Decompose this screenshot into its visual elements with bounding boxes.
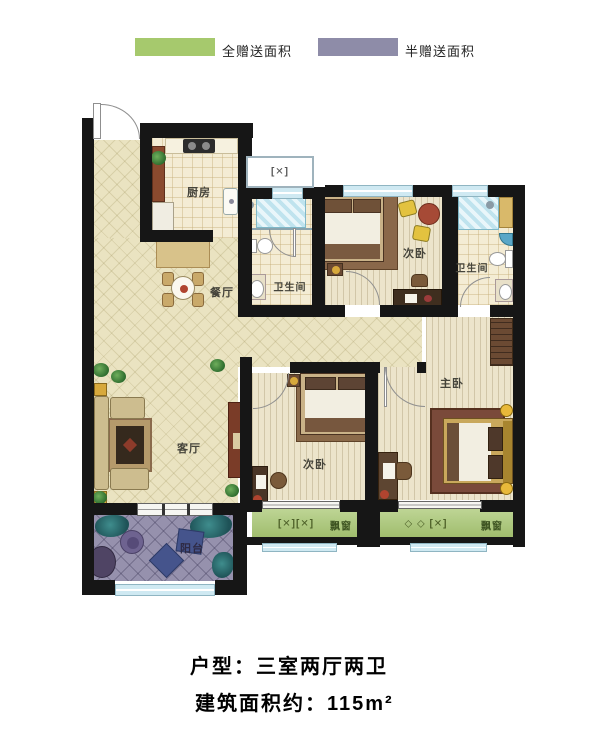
- bay-window-symbol: [✕][✕]: [278, 519, 314, 530]
- bathroom-sink-icon: [495, 279, 513, 302]
- nightstand-icon: [327, 263, 343, 276]
- master-bed-icon: [443, 418, 513, 484]
- nightstand-icon: [287, 374, 300, 387]
- balcony-table-icon: [120, 530, 144, 554]
- room-label-living: 客厅: [177, 440, 201, 456]
- wall-segment: [442, 185, 458, 317]
- legend-full-gift-swatch: [135, 38, 215, 56]
- shower-head-icon: [486, 201, 494, 209]
- window-bathroom2: [452, 185, 488, 197]
- window-balcony: [115, 584, 215, 596]
- bed-icon: [300, 373, 372, 435]
- wall-segment: [82, 118, 94, 595]
- dining-table-icon: [171, 276, 195, 300]
- bay-window-left-label: 飘窗: [330, 518, 352, 533]
- dining-rug: [156, 238, 210, 268]
- sofa-icon: [94, 396, 109, 490]
- wardrobe-icon: [490, 318, 513, 366]
- bay-window-left-glass: [262, 543, 337, 552]
- hallway-floor: [238, 317, 422, 367]
- desk-chair-icon: [411, 274, 428, 287]
- wall-segment: [378, 500, 398, 512]
- wall-segment: [147, 230, 213, 242]
- room-label-bathroom1: 卫生间: [274, 279, 307, 294]
- window-bathroom1: [272, 187, 303, 199]
- room-label-dining: 餐厅: [210, 284, 234, 300]
- legend-half-gift-label: 半赠送面积: [405, 41, 475, 60]
- desk-chair-icon: [396, 462, 412, 480]
- wall-segment: [140, 123, 253, 138]
- kitchen-sink-icon: [223, 188, 238, 215]
- dining-chair: [192, 293, 204, 307]
- plant-icon: [151, 151, 166, 165]
- plant-icon: [210, 359, 225, 372]
- bay-window-right-label: 飘窗: [481, 518, 503, 533]
- legend-full-gift-label: 全赠送面积: [222, 41, 292, 60]
- wall-segment: [290, 362, 380, 373]
- wall-segment: [240, 362, 252, 510]
- desk-chair-icon: [270, 472, 287, 489]
- toilet-icon: [505, 250, 513, 268]
- bay-window-left-frame: [262, 501, 340, 509]
- room-label-bedroom-bottom: 次卧: [303, 456, 327, 472]
- wall-segment: [380, 305, 458, 317]
- wall-segment: [82, 580, 115, 595]
- wall-segment: [312, 187, 325, 317]
- wall-segment: [480, 500, 513, 512]
- window-bedroom-top: [343, 185, 413, 197]
- caption-area: 建筑面积约：115m²: [195, 687, 394, 716]
- wall-segment: [365, 373, 378, 510]
- fridge-icon: [152, 202, 174, 232]
- wall-segment: [238, 305, 325, 317]
- plant-icon: [225, 484, 239, 497]
- lamp-icon: [500, 482, 513, 495]
- plant-icon: [111, 370, 126, 383]
- room-label-bathroom2: 卫生间: [456, 260, 489, 275]
- entry-floor: [94, 140, 140, 240]
- wall-segment: [243, 187, 272, 199]
- bay-window-symbol: ◇ ◇ [✕]: [405, 519, 448, 530]
- room-label-master: 主卧: [440, 375, 464, 391]
- flower-icon: [380, 490, 389, 499]
- bay-window-right-glass: [410, 543, 487, 552]
- flue-shaft-symbol: [✕]: [271, 167, 289, 178]
- floorplan-page: 全赠送面积 半赠送面积: [0, 0, 600, 746]
- shower-icon: [458, 196, 499, 230]
- bay-window-right-frame: [398, 501, 482, 509]
- room-label-bedroom-top: 次卧: [403, 245, 427, 261]
- wall-segment: [238, 123, 252, 317]
- chair-icon: [412, 225, 431, 243]
- wall-segment: [325, 305, 345, 317]
- toilet-icon: [489, 252, 506, 266]
- legend-half-gift-swatch: [318, 38, 398, 56]
- wall-segment: [325, 185, 343, 197]
- dining-chair: [162, 293, 174, 307]
- lamp-icon: [500, 404, 513, 417]
- bed-icon: [318, 194, 384, 262]
- wall-segment: [513, 185, 525, 547]
- wall-segment: [140, 123, 152, 242]
- side-table-icon: [94, 383, 107, 396]
- round-table-icon: [418, 203, 440, 225]
- balcony-sliding-door: [137, 503, 213, 516]
- entrance-door-leaf: [93, 103, 101, 139]
- room-label-kitchen: 厨房: [187, 184, 211, 200]
- wall-segment: [215, 580, 247, 595]
- wall-segment: [82, 503, 137, 515]
- wall-segment: [490, 305, 513, 317]
- plant-icon: [93, 363, 109, 377]
- armchair-icon: [110, 468, 149, 490]
- stove-icon: [183, 139, 215, 153]
- armchair-icon: [110, 397, 145, 419]
- bath-shelf: [499, 197, 513, 228]
- room-label-balcony: 阳台: [180, 540, 204, 556]
- coffee-table-icon: [116, 426, 144, 464]
- caption-unit-type: 户型：三室两厅两卫: [190, 650, 388, 679]
- entrance-door-arc: [101, 104, 140, 139]
